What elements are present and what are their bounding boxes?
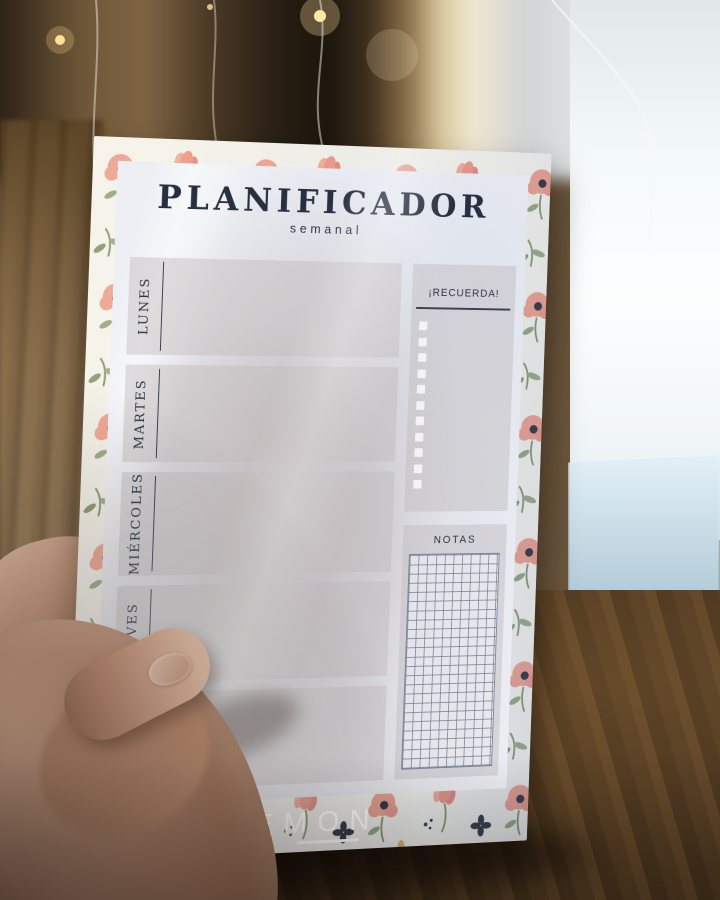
reminder-checkbox [416, 401, 425, 410]
reminder-checkbox [418, 353, 427, 362]
photo-scene: PLANIFICADOR semanal LUNES MARTES [0, 0, 720, 900]
side-column: ¡RECUERDA! NOTAS [394, 264, 516, 780]
notas-section: NOTAS [394, 524, 507, 779]
reminder-checkbox [417, 385, 426, 394]
day-writing-area [157, 365, 399, 462]
recuerda-checkbox-column [413, 321, 427, 488]
title-block: PLANIFICADOR semanal [115, 179, 528, 255]
day-writing-area [152, 472, 394, 575]
reminder-checkbox [416, 417, 425, 426]
day-label: MIÉRCOLES [118, 472, 155, 575]
reminder-checkbox [418, 337, 427, 346]
day-label: MARTES [122, 365, 159, 463]
reminder-checkbox [415, 432, 424, 441]
recuerda-title: ¡RECUERDA! [412, 264, 516, 301]
day-writing-area [161, 258, 403, 358]
reminder-checkbox [419, 321, 428, 330]
notas-grid [401, 553, 500, 770]
reminder-checkbox [413, 480, 422, 489]
reminder-checkbox [414, 448, 423, 457]
recuerda-rule [416, 307, 510, 310]
reminder-checkbox [414, 464, 423, 473]
reminder-checkbox [417, 369, 426, 378]
day-label: LUNES [126, 257, 163, 355]
recuerda-section: ¡RECUERDA! [404, 264, 516, 512]
day-row-lunes: LUNES [126, 257, 402, 358]
day-row-martes: MARTES [122, 365, 398, 463]
notas-title: NOTAS [403, 524, 507, 546]
day-row-miercoles: MIÉRCOLES [118, 472, 395, 576]
